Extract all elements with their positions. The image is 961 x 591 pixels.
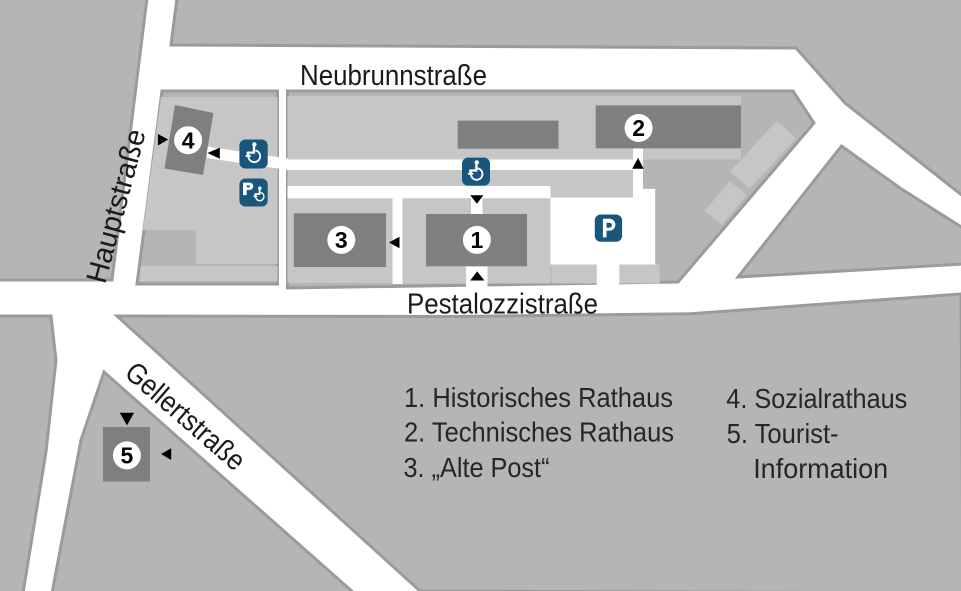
svg-text:Neubrunnstraße: Neubrunnstraße — [300, 60, 487, 92]
svg-text:2: 2 — [632, 115, 645, 141]
svg-text:4. Sozialrathaus: 4. Sozialrathaus — [726, 383, 907, 414]
svg-text:Pestalozzistraße: Pestalozzistraße — [407, 289, 598, 321]
svg-text:2. Technisches Rathaus: 2. Technisches Rathaus — [404, 417, 674, 448]
svg-text:5: 5 — [121, 443, 134, 469]
svg-text:3: 3 — [335, 227, 348, 253]
svg-text:3. „Alte Post“: 3. „Alte Post“ — [404, 452, 550, 483]
svg-text:5. Tourist-: 5. Tourist- — [727, 418, 839, 449]
svg-text:1. Historisches Rathaus: 1. Historisches Rathaus — [404, 382, 673, 413]
svg-text:1: 1 — [471, 227, 484, 253]
svg-text:4: 4 — [182, 127, 195, 153]
svg-text:Information: Information — [753, 453, 888, 484]
